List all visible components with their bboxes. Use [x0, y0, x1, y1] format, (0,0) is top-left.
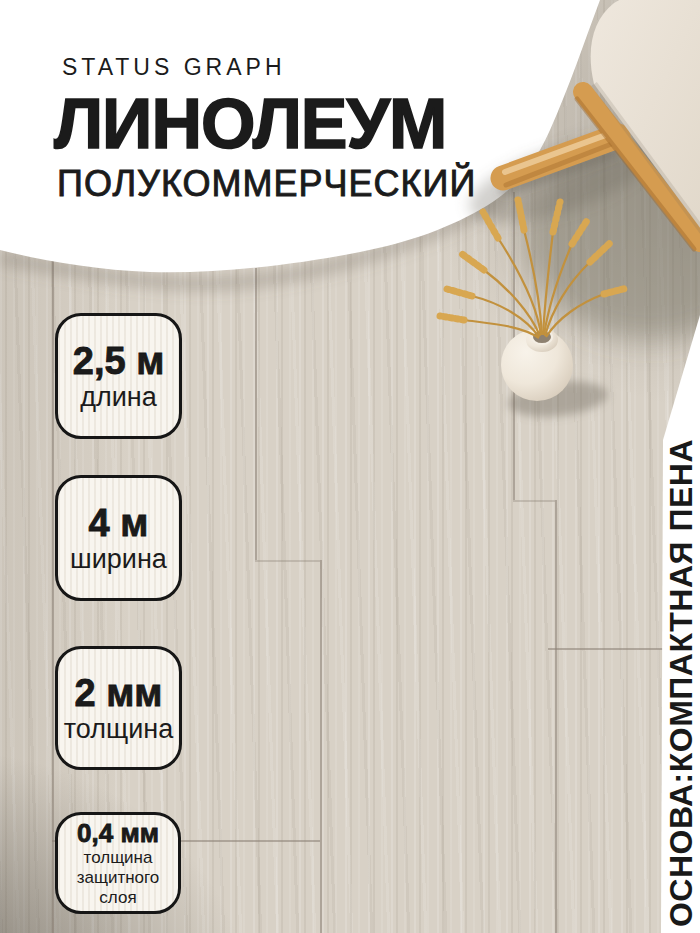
badge-label: ширина [70, 544, 167, 574]
spec-badge-width: 4 м ширина [55, 475, 182, 601]
spec-badge-protective-layer: 0,4 мм толщина защитного слоя [55, 812, 181, 914]
badge-label: длина [80, 382, 157, 412]
badge-value: 2,5 м [73, 340, 165, 382]
side-note-vertical: ОСНОВА:КОМПАКТНАЯ ПЕНА [662, 433, 700, 933]
product-title: ЛИНОЛЕУМ [54, 88, 446, 160]
spec-badge-length: 2,5 м длина [55, 313, 182, 439]
badge-value: 0,4 мм [77, 818, 159, 848]
spec-badge-thickness: 2 мм толщина [55, 646, 182, 770]
brand-name: STATUS GRAPH [62, 54, 286, 80]
product-subtitle: ПОЛУКОММЕРЧЕСКИЙ [57, 163, 476, 205]
badge-label: толщина защитного слоя [77, 848, 160, 908]
badge-value: 4 м [89, 502, 149, 544]
product-card: STATUS GRAPH ЛИНОЛЕУМ ПОЛУКОММЕРЧЕСКИЙ 2… [0, 0, 700, 933]
badge-value: 2 мм [75, 672, 163, 714]
badge-label: толщина [64, 714, 173, 744]
